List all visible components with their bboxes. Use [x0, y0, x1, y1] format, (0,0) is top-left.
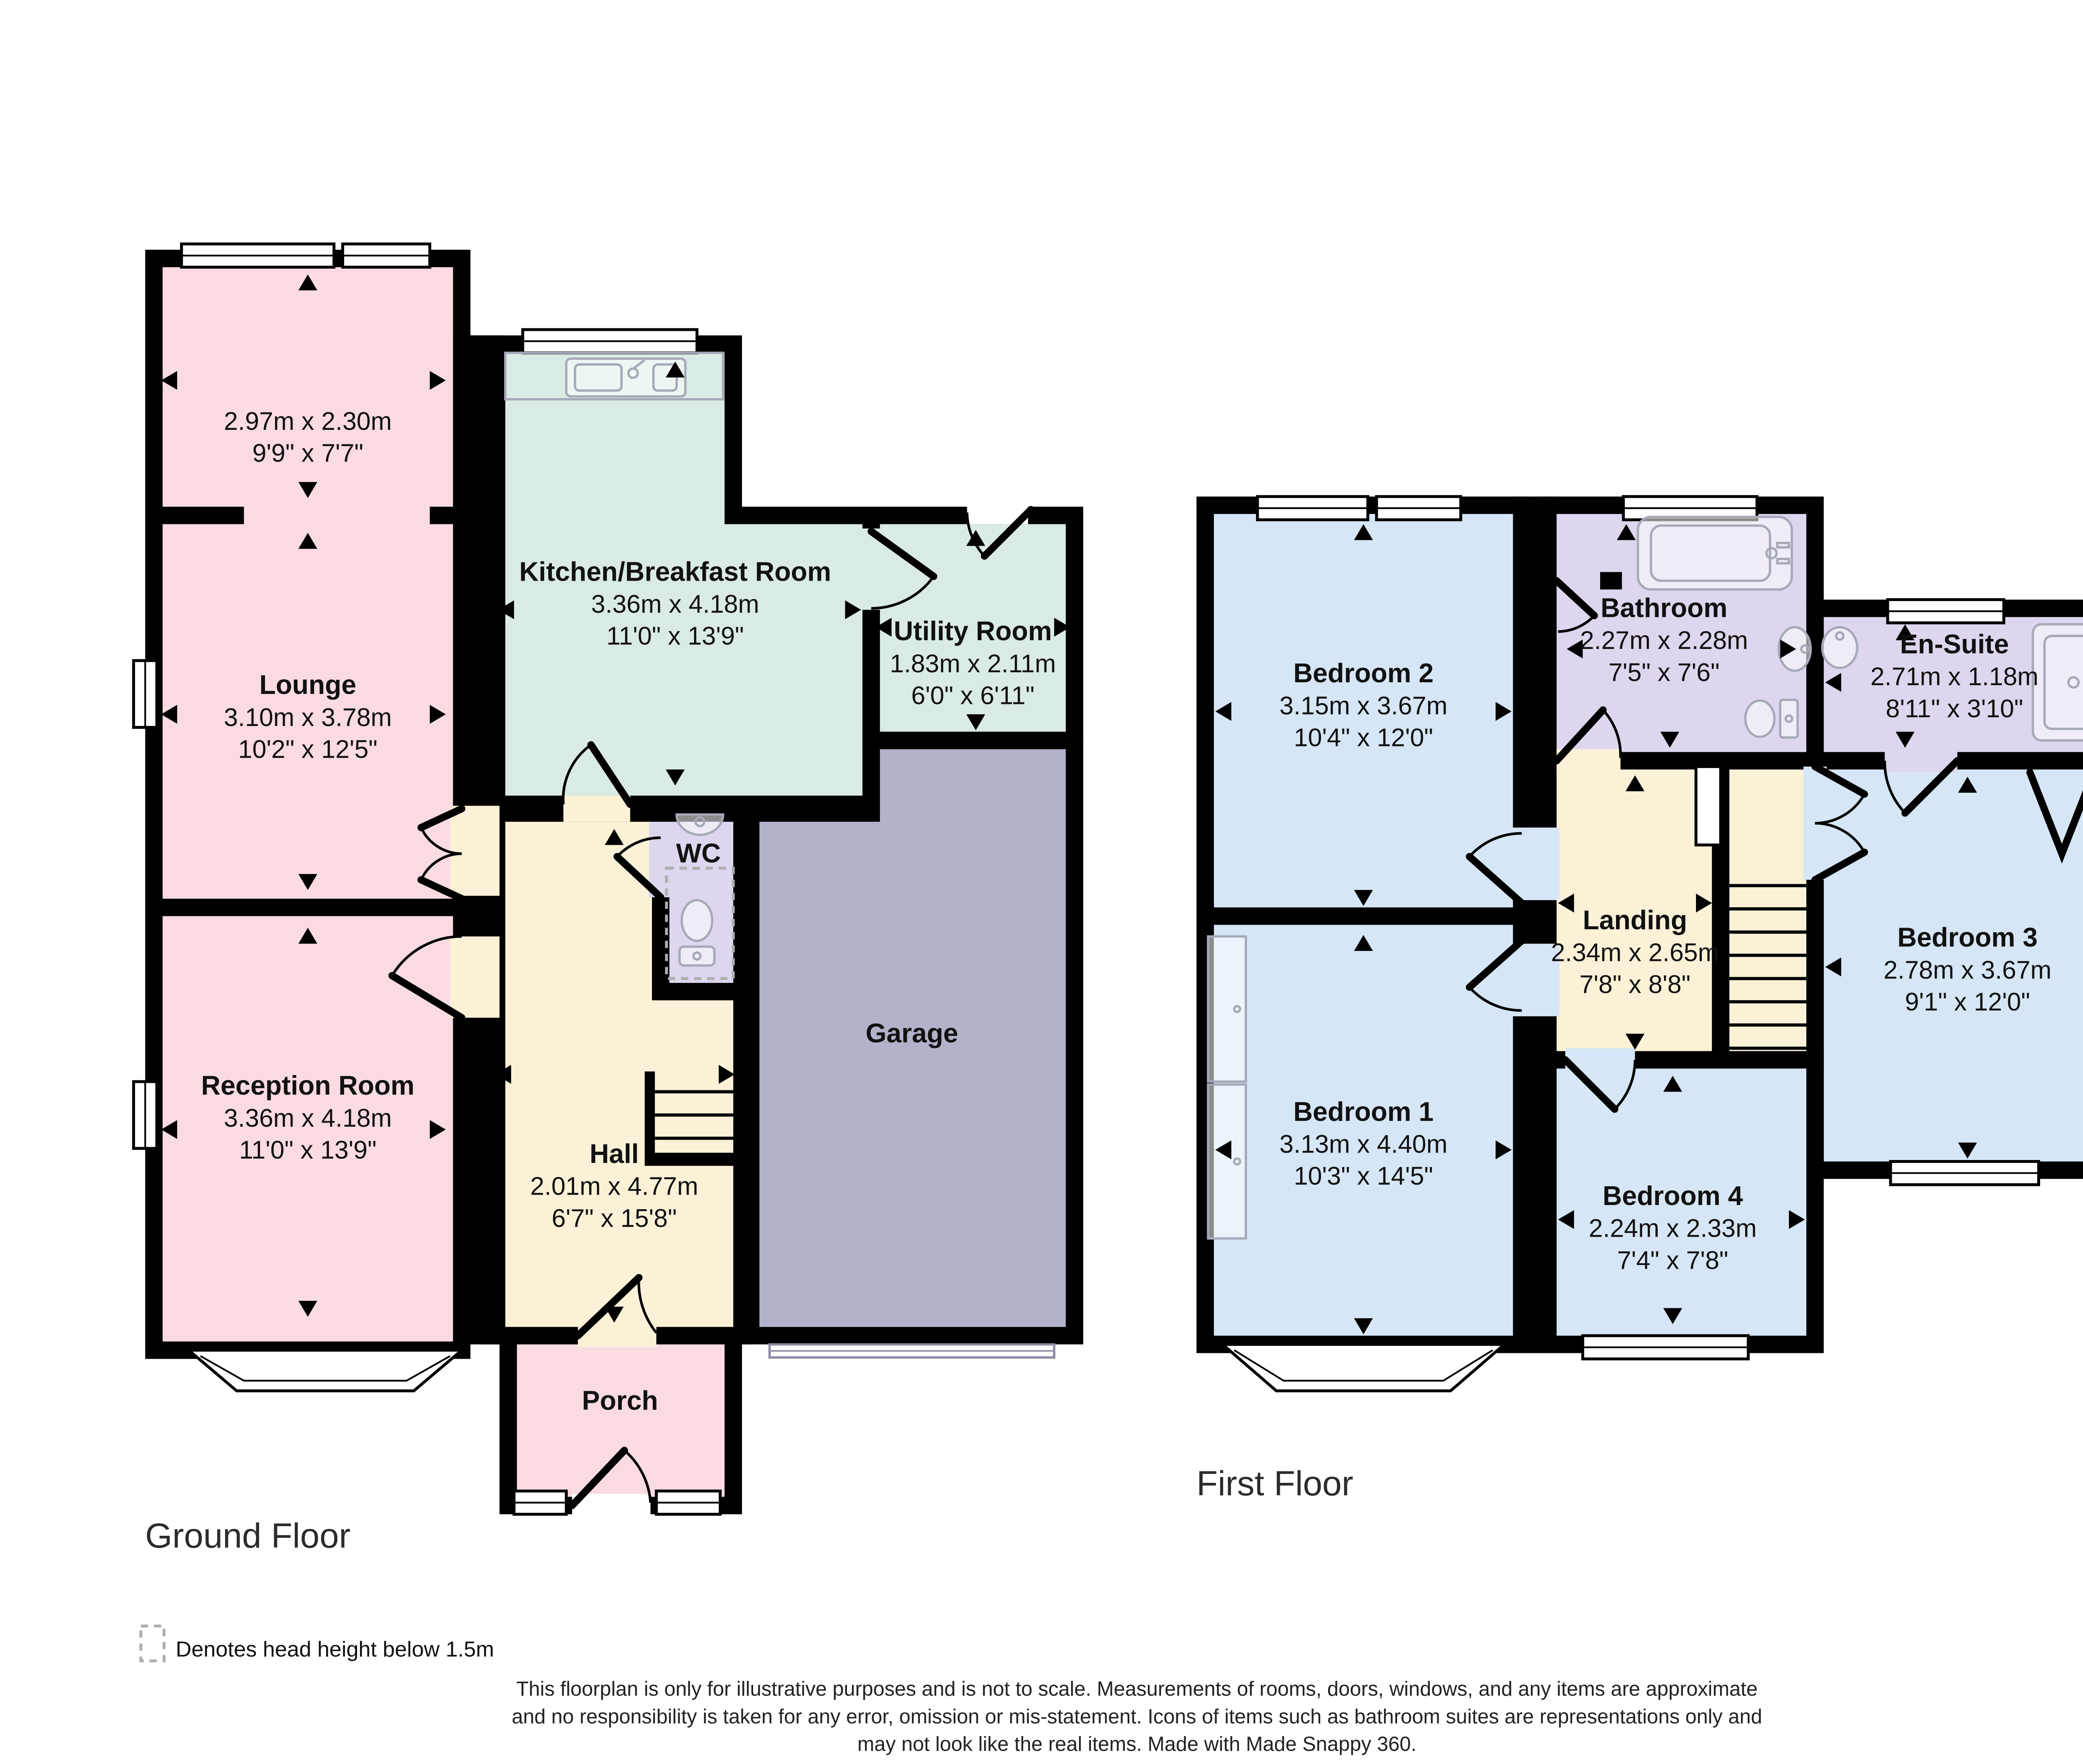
bedroom3-imperial: 9'1" x 12'0": [1905, 988, 2030, 1016]
kitchen-name: Kitchen/Breakfast Room: [519, 556, 831, 586]
first-floor-plan: Bedroom 2 3.15m x 3.67m 10'4" x 12'0" Ba…: [1205, 497, 2083, 1391]
disclaimer: This floorplan is only for illustrative …: [512, 1678, 1762, 1755]
bedroom4-name: Bedroom 4: [1603, 1181, 1743, 1211]
lounge-name: Lounge: [260, 670, 357, 700]
utility-imperial: 6'0" x 6'11": [911, 681, 1034, 710]
bathroom-metric: 2.27m x 2.28m: [1580, 626, 1748, 654]
bedroom4-imperial: 7'4" x 7'8": [1617, 1246, 1728, 1274]
bedroom1-metric: 3.13m x 4.40m: [1279, 1130, 1447, 1158]
ensuite-name: En-Suite: [1900, 629, 2009, 659]
front-room-metric: 2.97m x 2.30m: [224, 407, 392, 435]
shower-icon: [2033, 624, 2083, 741]
reception-imperial: 11'0" x 13'9": [239, 1135, 377, 1164]
disclaimer-line2: and no responsibility is taken for any e…: [512, 1705, 1762, 1728]
floorplan-canvas: 2.97m x 2.30m 9'9" x 7'7" Lounge 3.10m x…: [0, 0, 2083, 1764]
reception-metric: 3.36m x 4.18m: [224, 1104, 392, 1132]
bedroom2-metric: 3.15m x 3.67m: [1279, 691, 1447, 720]
room-porch-shape: [508, 1336, 733, 1506]
bedroom3-metric: 2.78m x 3.67m: [1883, 956, 2051, 984]
bathroom-name: Bathroom: [1601, 593, 1727, 623]
landing-name: Landing: [1583, 905, 1687, 935]
ensuite-metric: 2.71m x 1.18m: [1871, 662, 2038, 691]
bedroom4-metric: 2.24m x 2.33m: [1589, 1214, 1757, 1243]
bay-window-ground: [189, 1350, 462, 1391]
wc-name: WC: [676, 838, 721, 868]
bathtub-icon: [1638, 517, 1792, 589]
hall-metric: 2.01m x 4.77m: [530, 1172, 698, 1200]
first-floor-label: First Floor: [1196, 1464, 1353, 1503]
ground-floor-plan: 2.97m x 2.30m 9'9" x 7'7" Lounge 3.10m x…: [134, 244, 1075, 1517]
bedroom3-name: Bedroom 3: [1897, 923, 2038, 953]
landing-imperial: 7'8" x 8'8": [1579, 970, 1691, 998]
bedroom1-name: Bedroom 1: [1293, 1097, 1434, 1127]
ensuite-sink-icon: [1822, 627, 1857, 668]
legend-label: Denotes head height below 1.5m: [176, 1637, 494, 1662]
hall-imperial: 6'7" x 15'8": [552, 1204, 677, 1232]
wardrobe-icon: [1208, 936, 1246, 1238]
bay-window-first: [1223, 1345, 1504, 1391]
reception-name: Reception Room: [201, 1070, 415, 1100]
front-room-imperial: 9'9" x 7'7": [252, 439, 364, 467]
disclaimer-line3: may not look like the real items. Made w…: [857, 1733, 1416, 1756]
legend: Denotes head height below 1.5m: [141, 1626, 494, 1662]
bedroom2-imperial: 10'4" x 12'0": [1294, 724, 1433, 752]
head-height-icon: [141, 1626, 164, 1661]
kitchen-metric: 3.36m x 4.18m: [591, 590, 759, 618]
utility-name: Utility Room: [894, 616, 1052, 646]
garage-name: Garage: [866, 1018, 958, 1048]
bedroom2-name: Bedroom 2: [1293, 658, 1434, 688]
lounge-imperial: 10'2" x 12'5": [238, 735, 377, 763]
utility-metric: 1.83m x 2.11m: [890, 649, 1056, 678]
porch-name: Porch: [582, 1385, 658, 1415]
ground-floor-label: Ground Floor: [145, 1516, 351, 1555]
landing-metric: 2.34m x 2.65m: [1551, 938, 1719, 966]
lounge-metric: 3.10m x 3.78m: [224, 703, 392, 731]
ensuite-imperial: 8'11" x 3'10": [1886, 694, 2023, 723]
disclaimer-line1: This floorplan is only for illustrative …: [516, 1678, 1758, 1700]
bedroom1-imperial: 10'3" x 14'5": [1294, 1162, 1433, 1190]
bathroom-imperial: 7'5" x 7'6": [1608, 658, 1720, 686]
kitchen-imperial: 11'0" x 13'9": [607, 622, 744, 650]
hall-name: Hall: [589, 1139, 639, 1169]
